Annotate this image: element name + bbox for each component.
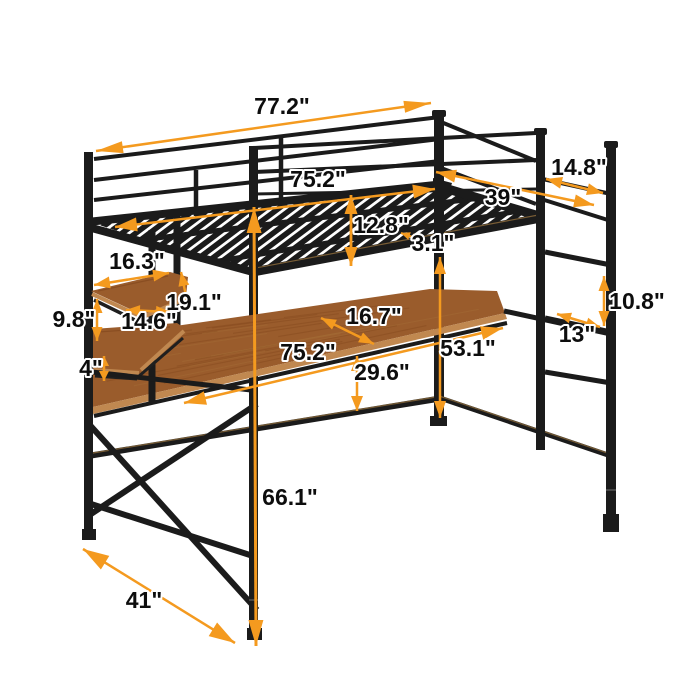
svg-text:39": 39" — [485, 184, 522, 210]
svg-text:66.1": 66.1" — [262, 484, 318, 510]
svg-text:16.7": 16.7" — [346, 303, 402, 329]
svg-text:29.6": 29.6" — [354, 359, 410, 385]
svg-text:75.2": 75.2" — [280, 339, 336, 365]
svg-text:13": 13" — [559, 321, 596, 347]
svg-text:14.8": 14.8" — [551, 154, 607, 180]
svg-text:14.6": 14.6" — [121, 308, 177, 334]
svg-text:77.2": 77.2" — [254, 93, 310, 119]
svg-text:41": 41" — [126, 587, 163, 613]
svg-text:3.1": 3.1" — [412, 230, 455, 256]
svg-text:16.3": 16.3" — [109, 248, 165, 274]
svg-text:53.1": 53.1" — [440, 335, 496, 361]
svg-text:10.8": 10.8" — [609, 288, 665, 314]
svg-text:9.8": 9.8" — [53, 306, 96, 332]
svg-text:75.2": 75.2" — [290, 166, 346, 192]
svg-text:4": 4" — [79, 355, 103, 381]
svg-text:12.8": 12.8" — [353, 212, 409, 238]
